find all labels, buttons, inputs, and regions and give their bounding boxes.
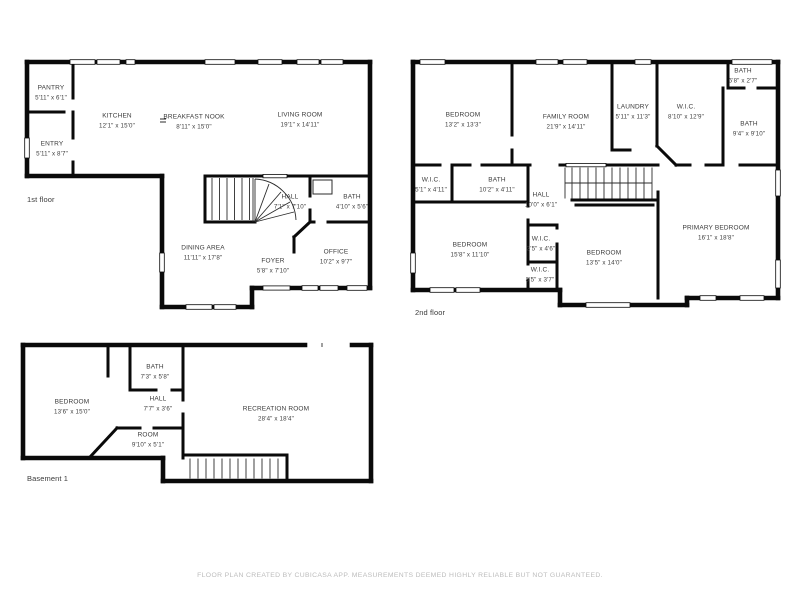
first-floor-outer-walls — [27, 62, 370, 307]
room-label-kitchen: KITCHEN12'1" x 15'0" — [99, 111, 135, 130]
room-label-bedroom-2f-b: BEDROOM15'8" x 11'10" — [450, 240, 489, 259]
room-label-wic-closet-b: W.I.C.3'5" x 3'7" — [526, 265, 555, 284]
floor-label-1st: 1st floor — [27, 195, 55, 204]
room-label-bedroom-2f-a: BEDROOM13'2" x 13'3" — [445, 110, 481, 129]
room-label-recreation-room: RECREATION ROOM28'4" x 18'4" — [243, 404, 309, 423]
room-label-room-bsmt: ROOM9'10" x 5'1" — [132, 430, 164, 449]
room-label-wic-small-2f: W.I.C.5'1" x 4'11" — [415, 175, 447, 194]
room-label-office: OFFICE10'2" x 9'7" — [320, 247, 352, 266]
floor-label-basement: Basement 1 — [27, 474, 68, 483]
floor-plan-drawing — [0, 0, 800, 600]
room-label-hall-2f: HALL10'0" x 6'1" — [525, 190, 557, 209]
disclaimer-text: FLOOR PLAN CREATED BY CUBICASA APP. MEAS… — [0, 572, 800, 579]
room-label-bath-bsmt: BATH7'3" x 5'8" — [141, 362, 170, 381]
room-label-laundry: LAUNDRY5'11" x 11'3" — [616, 102, 651, 121]
room-label-foyer: FOYER5'8" x 7'10" — [257, 256, 289, 275]
room-label-hall-bsmt: HALL7'7" x 3'6" — [144, 394, 173, 413]
room-label-living-room: LIVING ROOM19'1" x 14'11" — [278, 110, 323, 129]
first-floor-windows — [25, 60, 367, 310]
room-label-bath-top: BATH6'8" x 2'7" — [729, 66, 758, 85]
second-floor-stairs — [565, 168, 652, 199]
floor-label-2nd: 2nd floor — [415, 308, 445, 317]
room-label-wic-closet-a: W.I.C.3'5" x 4'6" — [527, 234, 556, 253]
floor-plan-page: PANTRY5'11" x 6'1" KITCHEN12'1" x 15'0" … — [0, 0, 800, 600]
room-label-dining-area: DINING AREA11'11" x 17'8" — [181, 243, 225, 262]
room-label-pantry: PANTRY5'11" x 6'1" — [35, 83, 67, 102]
room-label-entry: ENTRY5'11" x 8'7" — [36, 139, 68, 158]
room-label-bath-right: BATH9'4" x 9'10" — [733, 119, 765, 138]
room-label-bath-1f: BATH4'10" x 5'6" — [336, 192, 368, 211]
room-label-wic-large: W.I.C.8'10" x 12'9" — [668, 102, 704, 121]
basement-stairs — [190, 459, 278, 479]
second-floor-windows — [411, 60, 781, 308]
room-label-bedroom-bsmt: BEDROOM13'6" x 15'0" — [54, 397, 90, 416]
room-label-bedroom-2f-c: BEDROOM13'5" x 14'0" — [586, 248, 622, 267]
room-label-hall-1f: HALL7'1" x 7'10" — [274, 192, 306, 211]
room-label-breakfast-nook: BREAKFAST NOOK8'11" x 15'0" — [163, 112, 224, 131]
room-label-bath-mid: BATH10'2" x 4'11" — [479, 175, 514, 194]
room-label-family-room: FAMILY ROOM21'9" x 14'11" — [543, 112, 589, 131]
room-label-primary-bedroom: PRIMARY BEDROOM16'1" x 18'8" — [682, 223, 749, 242]
first-floor-inner-walls — [27, 62, 370, 252]
